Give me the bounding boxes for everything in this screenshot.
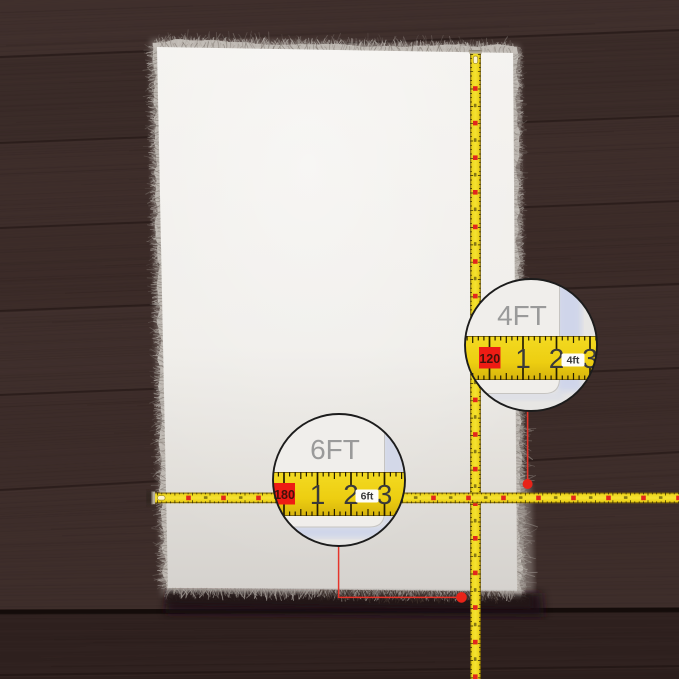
svg-text:4FT: 4FT — [497, 300, 547, 331]
svg-text:1: 1 — [515, 343, 531, 374]
svg-text:6ft: 6ft — [361, 491, 374, 503]
svg-text:180: 180 — [274, 488, 295, 502]
svg-text:3: 3 — [377, 479, 393, 510]
svg-text:1: 1 — [310, 479, 326, 510]
svg-text:6FT: 6FT — [310, 434, 360, 465]
svg-text:4ft: 4ft — [567, 355, 580, 367]
svg-text:120: 120 — [479, 352, 500, 366]
